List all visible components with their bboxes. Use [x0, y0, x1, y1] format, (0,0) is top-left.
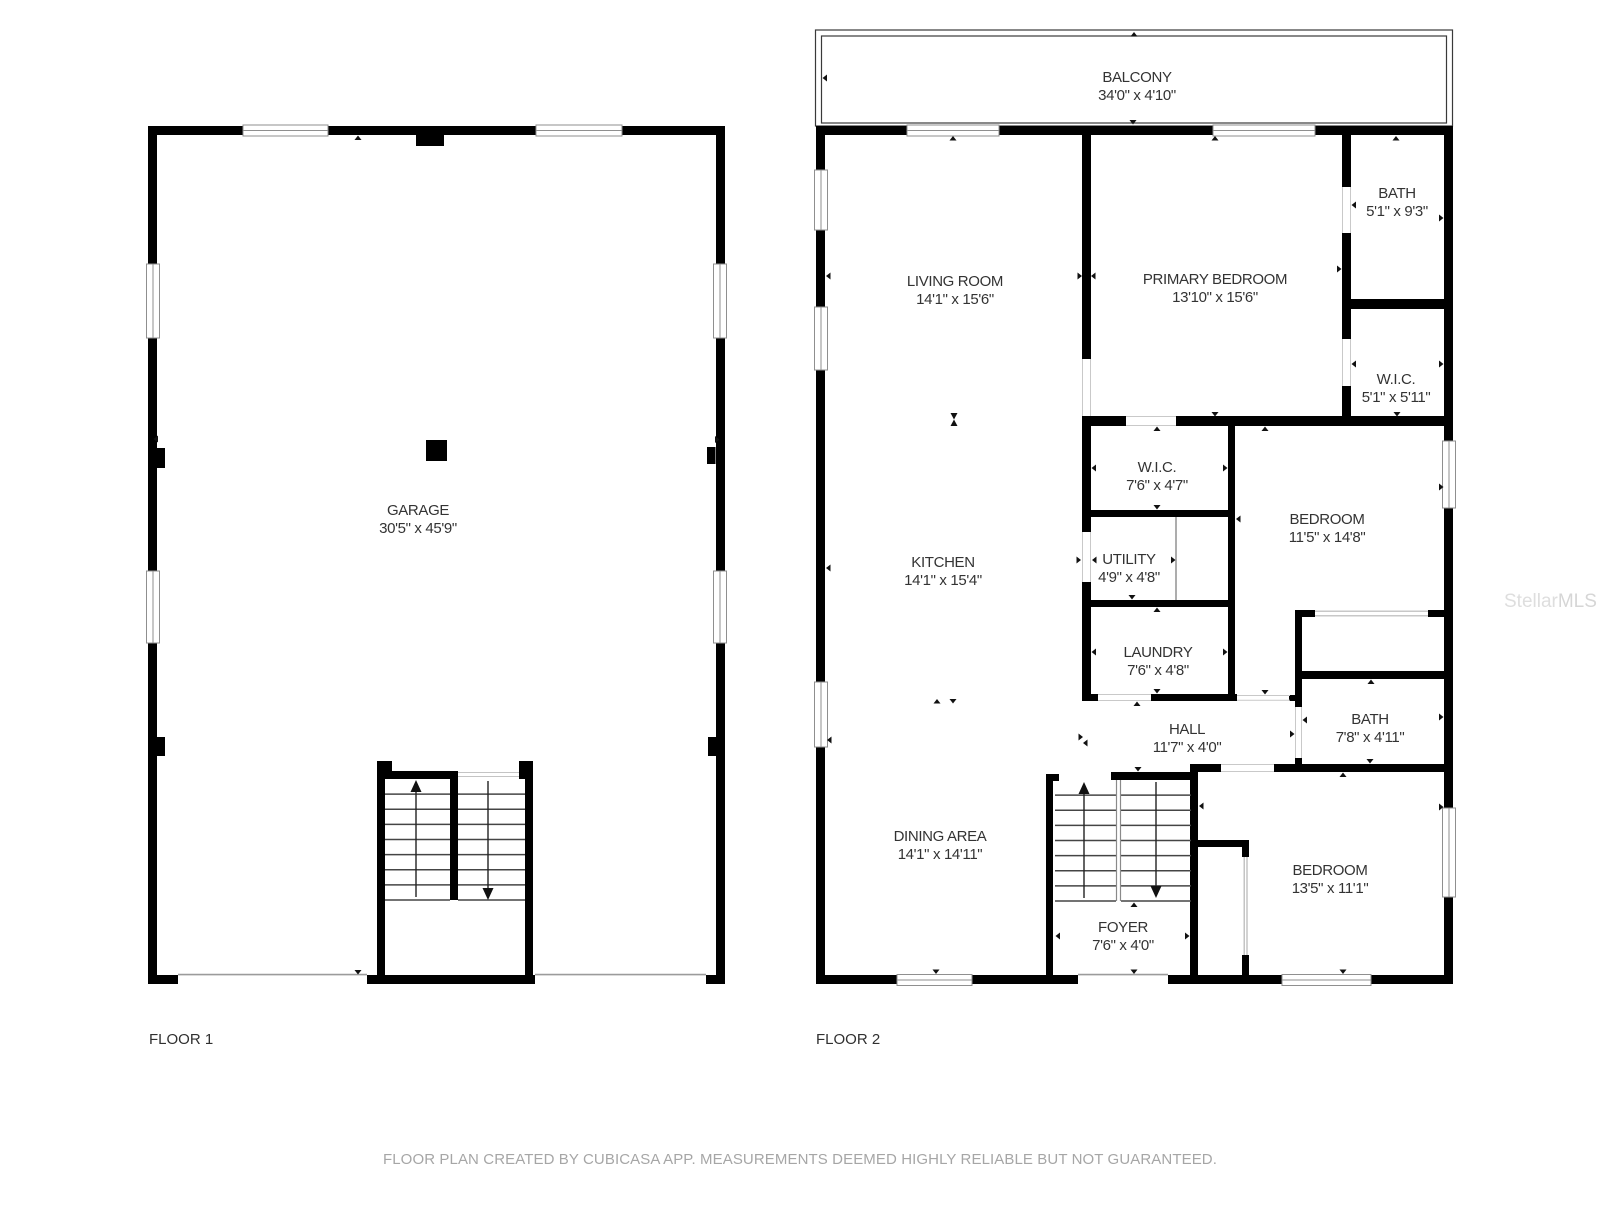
svg-text:4'9" x 4'8": 4'9" x 4'8" — [1098, 569, 1160, 586]
svg-text:13'10" x 15'6": 13'10" x 15'6" — [1172, 289, 1258, 306]
svg-text:30'5" x 45'9": 30'5" x 45'9" — [379, 520, 457, 537]
svg-text:5'1" x 9'3": 5'1" x 9'3" — [1366, 203, 1428, 220]
svg-text:DINING AREA: DINING AREA — [894, 828, 987, 845]
svg-text:FLOOR 2: FLOOR 2 — [816, 1031, 880, 1048]
svg-text:FLOOR 1: FLOOR 1 — [149, 1031, 213, 1048]
svg-text:FLOOR PLAN CREATED BY CUBICASA: FLOOR PLAN CREATED BY CUBICASA APP. MEAS… — [383, 1151, 1217, 1168]
svg-text:KITCHEN: KITCHEN — [911, 554, 974, 571]
svg-text:7'6" x 4'8": 7'6" x 4'8" — [1127, 662, 1189, 679]
svg-text:W.I.C.: W.I.C. — [1377, 371, 1416, 388]
svg-text:14'1" x 15'6": 14'1" x 15'6" — [916, 291, 994, 308]
svg-text:FOYER: FOYER — [1098, 919, 1148, 936]
svg-text:UTILITY: UTILITY — [1102, 551, 1156, 568]
svg-text:W.I.C.: W.I.C. — [1138, 459, 1177, 476]
svg-text:HALL: HALL — [1169, 721, 1205, 738]
svg-text:LIVING ROOM: LIVING ROOM — [907, 273, 1003, 290]
svg-text:14'1" x 14'11": 14'1" x 14'11" — [898, 846, 983, 863]
svg-text:11'7" x 4'0": 11'7" x 4'0" — [1153, 739, 1222, 756]
svg-text:PRIMARY BEDROOM: PRIMARY BEDROOM — [1143, 271, 1287, 288]
svg-text:11'5" x 14'8": 11'5" x 14'8" — [1289, 529, 1366, 546]
svg-text:5'1" x 5'11": 5'1" x 5'11" — [1362, 389, 1431, 406]
svg-text:BATH: BATH — [1378, 185, 1416, 202]
svg-text:BEDROOM: BEDROOM — [1292, 862, 1367, 879]
svg-text:BATH: BATH — [1351, 711, 1389, 728]
svg-text:BEDROOM: BEDROOM — [1289, 511, 1364, 528]
svg-text:LAUNDRY: LAUNDRY — [1124, 644, 1193, 661]
svg-text:GARAGE: GARAGE — [387, 502, 449, 519]
svg-text:StellarMLS: StellarMLS — [1504, 591, 1597, 612]
svg-text:7'8" x 4'11": 7'8" x 4'11" — [1336, 729, 1405, 746]
svg-text:14'1" x 15'4": 14'1" x 15'4" — [904, 572, 982, 589]
svg-text:34'0" x 4'10": 34'0" x 4'10" — [1098, 87, 1176, 104]
svg-text:7'6" x 4'0": 7'6" x 4'0" — [1092, 937, 1154, 954]
svg-text:BALCONY: BALCONY — [1102, 69, 1172, 86]
svg-text:13'5" x 11'1": 13'5" x 11'1" — [1292, 880, 1369, 897]
svg-text:7'6" x 4'7": 7'6" x 4'7" — [1126, 477, 1188, 494]
